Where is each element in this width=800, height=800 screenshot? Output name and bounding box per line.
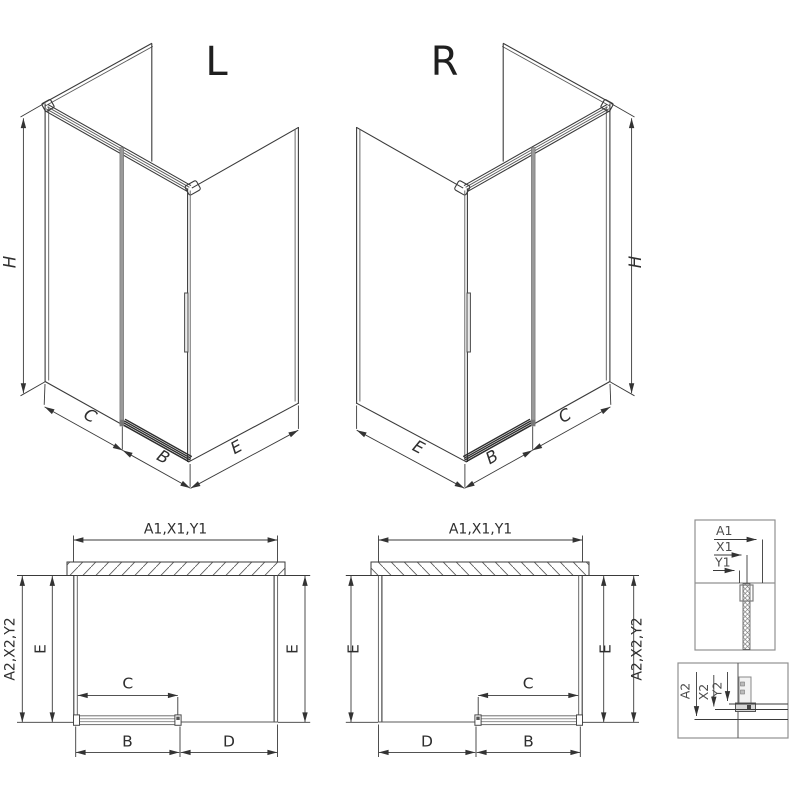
- dim-label-side-right: C: [555, 404, 575, 426]
- plan-left-dim-right: E: [284, 644, 302, 654]
- plan-left-dim-bottom-right: D: [223, 733, 235, 751]
- detail-top-label-y1: Y1: [714, 555, 731, 570]
- plan-right-dim-bottom-left: D: [421, 733, 433, 751]
- dim-label-height-right: H: [626, 256, 645, 268]
- iso-view-right: R H E B C: [357, 39, 645, 488]
- plan-left-dim-inner-left: E: [32, 644, 50, 654]
- plan-right-dim-left: E: [345, 644, 363, 654]
- plan-left-dim-door-panel: C: [122, 675, 133, 693]
- dim-label-depth-right: E: [410, 436, 429, 458]
- plan-left-dim-bottom-left: B: [122, 733, 133, 751]
- plan-right-dim-inner-right: E: [597, 644, 615, 654]
- shower-enclosure-drawing: L H C B E R H E B C A1,X1,Y1 A2,X2,Y2 E …: [0, 0, 800, 800]
- plan-right-dim-door-panel: C: [523, 675, 534, 693]
- plan-view-left: A1,X1,Y1 A2,X2,Y2 E E C B D: [3, 522, 311, 758]
- plan-left-dim-outer-left: A2,X2,Y2: [3, 617, 19, 680]
- detail-top-label-a1: A1: [716, 523, 733, 538]
- plan-view-right: A1,X1,Y1 E E A2,X2,Y2 C D B: [345, 522, 646, 758]
- dim-label-side-left: C: [81, 405, 101, 427]
- dim-label-depth-left: E: [227, 436, 246, 458]
- iso-view-left: L H C B E: [1, 39, 299, 488]
- dim-label-height-left: H: [1, 256, 20, 268]
- plan-right-dim-bottom-right: B: [523, 733, 534, 751]
- config-label-left: L: [205, 39, 228, 85]
- guide-roller: [741, 690, 745, 694]
- detail-bottom-label-a2: A2: [678, 683, 693, 700]
- detail-panel-top: A1 X1 Y1: [695, 520, 775, 650]
- detail-panel-bottom: A2 X2 Y2: [678, 663, 789, 738]
- dim-label-door-left: B: [154, 446, 173, 468]
- dim-label-door-right: B: [482, 446, 501, 468]
- guide-roller: [741, 682, 745, 686]
- plan-right-dim-outer-right: A2,X2,Y2: [630, 617, 646, 680]
- detail-top-label-x1: X1: [716, 539, 733, 554]
- plan-left-dim-top: A1,X1,Y1: [144, 522, 207, 538]
- plan-right-dim-top: A1,X1,Y1: [449, 522, 512, 538]
- config-label-right: R: [431, 39, 459, 85]
- detail-bottom-label-y2: Y2: [710, 682, 725, 699]
- technical-drawing-page: L H C B E R H E B C A1,X1,Y1 A2,X2,Y2 E …: [0, 0, 800, 800]
- glass-panel-section: [743, 584, 750, 650]
